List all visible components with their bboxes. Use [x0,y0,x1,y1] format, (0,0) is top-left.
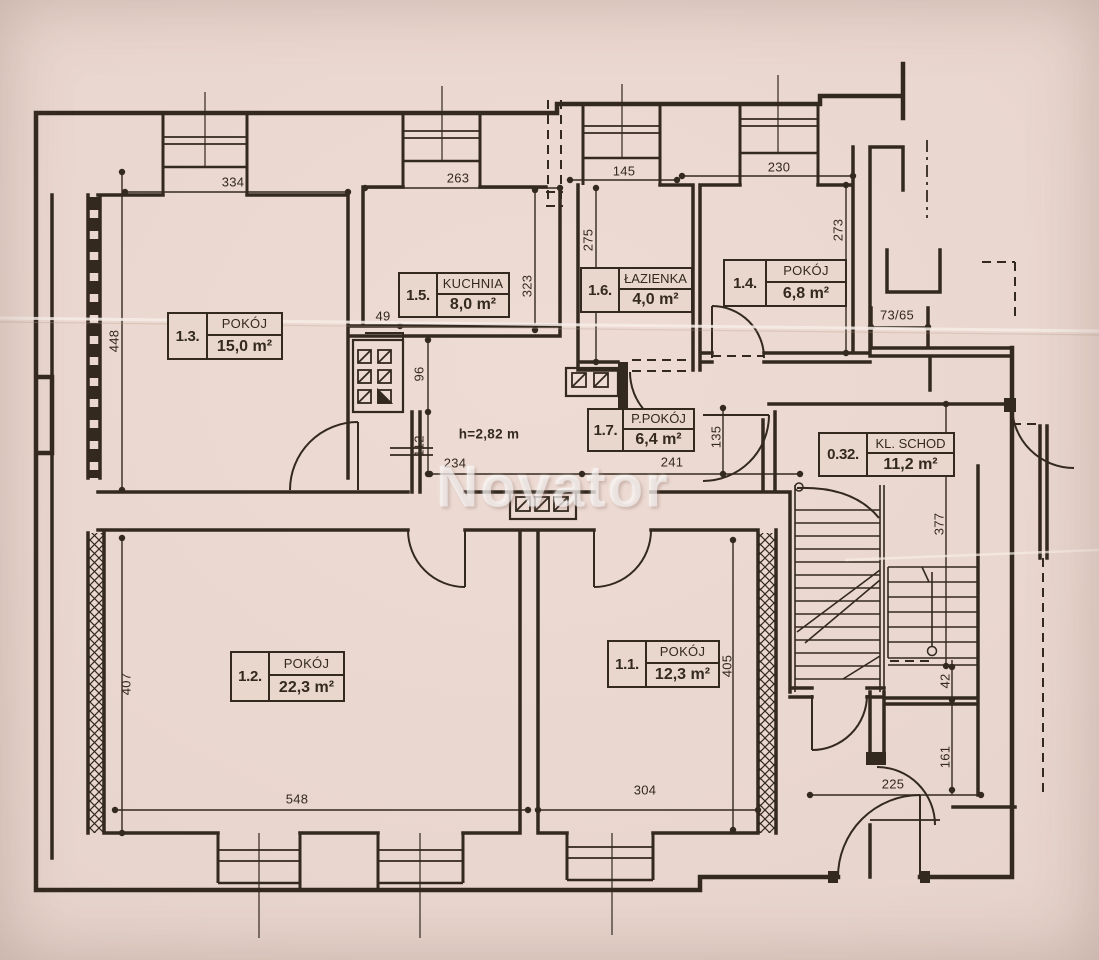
door-arcs [290,306,1074,883]
walls-interior [52,147,1047,877]
room-label-1-7: 1.7. P.POKÓJ 6,4 m² [587,408,695,452]
dim-407: 407 [119,673,134,696]
room-label-1-3: 1.3. POKÓJ 15,0 m² [167,312,283,360]
room-id: 1.4. [725,261,767,305]
room-label-1-1: 1.1. POKÓJ 12,3 m² [607,640,720,688]
dim-377: 377 [932,513,947,536]
dim-145: 145 [613,164,636,179]
room-name: KUCHNIA [438,274,508,295]
dim-234: 234 [444,456,467,471]
room-id: 0.32. [820,434,868,475]
room-id: 1.6. [582,269,620,311]
room-area: 8,0 m² [438,295,508,316]
dim-73-65: 73/65 [880,308,914,323]
dim-334: 334 [222,175,245,190]
room-name: POKÓJ [767,261,845,283]
room-label-1-6: 1.6. ŁAZIENKA 4,0 m² [580,267,693,313]
dim-225: 225 [882,777,905,792]
window-jambs [163,104,818,890]
dim-448: 448 [107,330,122,353]
dim-275: 275 [581,229,596,252]
dim-161: 161 [938,746,953,769]
room-area: 6,8 m² [767,283,845,305]
room-area: 4,0 m² [620,290,691,311]
room-label-1-2: 1.2. POKÓJ 22,3 m² [230,651,345,702]
room-area: 15,0 m² [208,336,281,358]
room-label-0-32: 0.32. KL. SCHOD 11,2 m² [818,432,955,477]
room-name: ŁAZIENKA [620,269,691,290]
room-name: KL. SCHOD [868,434,953,454]
room-name: POKÓJ [270,653,343,676]
room-area: 6,4 m² [624,430,693,450]
room-area: 22,3 m² [270,676,343,700]
room-id: 1.7. [589,410,624,450]
room-label-1-5: 1.5. KUCHNIA 8,0 m² [398,272,510,318]
floorplan-drawing [0,0,1099,960]
staircase [795,483,978,692]
room-area: 11,2 m² [868,454,953,475]
dim-241: 241 [661,455,684,470]
room-id: 1.1. [609,642,647,686]
room-label-1-4: 1.4. POKÓJ 6,8 m² [723,259,847,307]
dim-49: 49 [375,309,390,324]
ceiling-height-note: h=2,82 m [459,427,520,442]
room-area: 12,3 m² [647,664,718,686]
dim-230: 230 [768,160,791,175]
dim-323: 323 [520,275,535,298]
room-id: 1.2. [232,653,270,700]
dim-304: 304 [634,783,657,798]
dim-96: 96 [412,366,427,381]
room-name: POKÓJ [647,642,718,664]
room-name: POKÓJ [208,314,281,336]
dim-273: 273 [831,219,846,242]
dim-112: 112 [412,435,427,457]
dim-135: 135 [709,426,724,449]
dim-405: 405 [720,655,735,678]
room-id: 1.5. [400,274,438,316]
floor-plan: 1.3. POKÓJ 15,0 m² 1.5. KUCHNIA 8,0 m² 1… [0,0,1099,960]
room-name: P.POKÓJ [624,410,693,430]
dim-548: 548 [286,792,309,807]
dim-42: 42 [938,673,953,688]
dim-263: 263 [447,171,470,186]
room-id: 1.3. [169,314,208,358]
window-bay-lines [163,153,818,883]
